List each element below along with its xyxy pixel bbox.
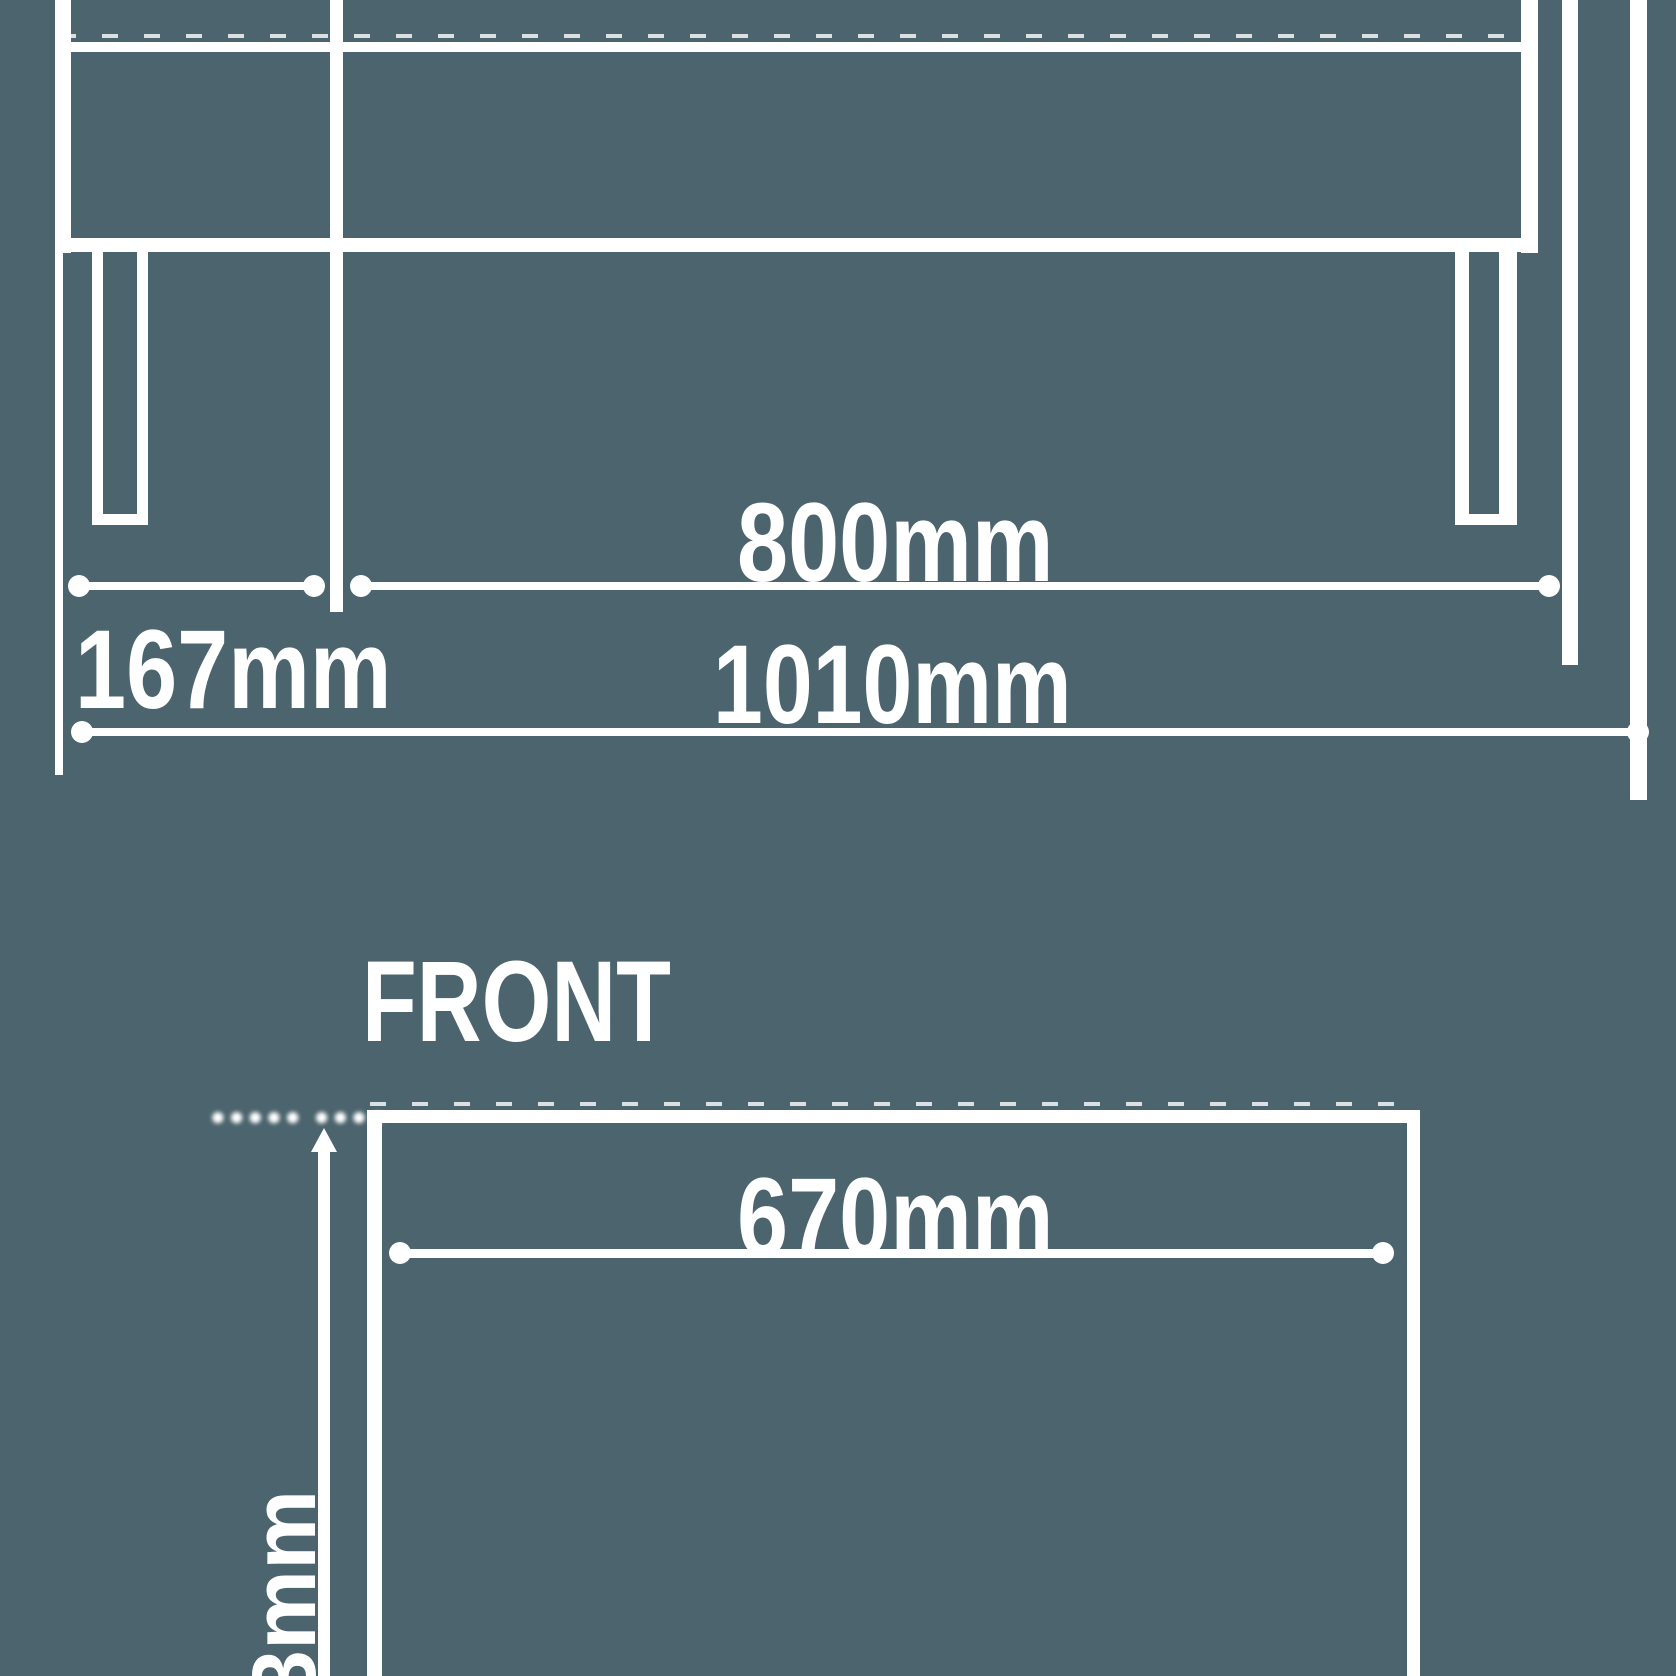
tabletop-top-line: [55, 42, 1538, 52]
right-leg-bottom: [1455, 514, 1517, 525]
illegible-small-label: ●●●●● ●●●●: [210, 1103, 389, 1129]
dim-167-label: 167mm: [75, 614, 392, 726]
dim-line-670: [400, 1249, 1383, 1258]
left-extension-line: [55, 0, 63, 775]
dim-167-right-dot: [303, 575, 325, 597]
dim-800-right-dot: [1538, 575, 1560, 597]
right-extension-line-800: [1562, 0, 1578, 665]
divider-extension-line: [330, 0, 343, 612]
right-leg-inner-wall: [1455, 252, 1469, 525]
tabletop-top-line-noise: [60, 34, 1520, 38]
front-view-title: FRONT: [362, 945, 671, 1060]
right-extension-line-1010: [1630, 0, 1647, 800]
dim-670-left-dot: [389, 1242, 411, 1264]
dim-800-label: 800mm: [737, 487, 1054, 599]
front-rect-left-edge: [367, 1110, 382, 1676]
front-rect-top-edge: [367, 1110, 1420, 1123]
dim-line-167: [79, 582, 314, 590]
dim-1010-label: 1010mm: [713, 629, 1072, 741]
dim-800-left-dot: [350, 575, 372, 597]
front-rect-top-noise: [370, 1102, 1410, 1106]
left-leg-outer-wall: [92, 252, 103, 525]
right-leg-outer-wall: [1499, 252, 1517, 525]
height-dim-label-partial: 3mm: [240, 1490, 330, 1676]
left-leg-inner-wall: [137, 252, 148, 525]
dim-670-right-dot: [1372, 1242, 1394, 1264]
tabletop-bottom-line: [55, 238, 1538, 252]
dim-1010-right-dot: [1627, 721, 1649, 743]
dim-167-left-dot: [68, 575, 90, 597]
front-rect-right-edge: [1407, 1110, 1420, 1676]
left-leg-bottom: [92, 514, 148, 525]
dimension-drawing-canvas: 800mm 167mm 1010mm FRONT ●●●●● ●●●● 670m…: [0, 0, 1676, 1676]
table-right-edge: [1521, 0, 1538, 253]
